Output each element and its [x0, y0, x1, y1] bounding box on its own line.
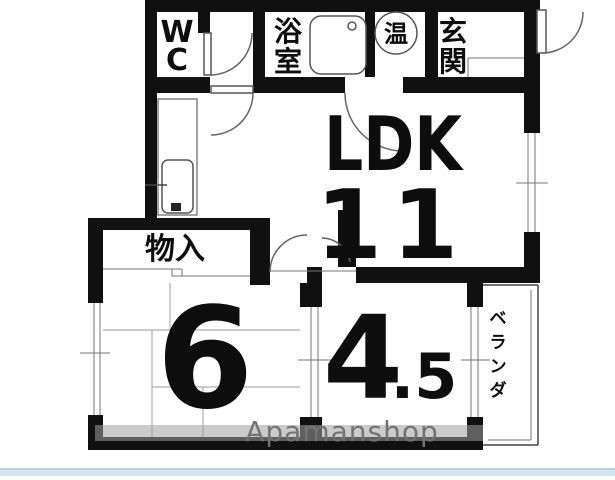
wall-under-entrance [403, 77, 524, 93]
wall-partition-top-stub [300, 283, 322, 307]
label-bath-2: 室 [274, 45, 302, 78]
front-door-leaf [537, 10, 546, 53]
window-room45-veranda [461, 307, 490, 417]
label-bath-1: 浴 [274, 15, 303, 48]
label-wc-c: C [166, 43, 188, 78]
window-ldk-right [516, 133, 548, 232]
door-leaf-hall-ldk [211, 86, 253, 93]
bathtub-drain-icon [348, 22, 356, 30]
label-entrance-2: 関 [439, 45, 467, 78]
label-veranda-2: ラ [490, 333, 507, 353]
label-room45-frac: .5 [391, 340, 458, 413]
wall-under-wc [145, 77, 210, 93]
wall-veranda-top-stub [467, 283, 483, 307]
wall-bath-left [253, 12, 265, 77]
label-entrance-1: 玄 [439, 15, 467, 48]
sink-drain-icon [171, 203, 181, 211]
door-arc-hall-ldk [211, 93, 253, 135]
floorplan-image: W C 浴 室 温 玄 関 LDK 11 物入 6 4 .5 ベ ラ ン ダ A… [0, 0, 615, 480]
wall-wc-right [198, 12, 210, 33]
wall-entrance-left [425, 12, 438, 93]
label-storage: 物入 [145, 232, 205, 267]
wall-under-bath [253, 77, 345, 93]
label-veranda-1: ベ [490, 309, 507, 329]
floorplan-svg: W C 浴 室 温 玄 関 LDK 11 物入 6 4 .5 ベ ラ ン ダ A… [0, 0, 615, 480]
label-ldk-size: 11 [316, 171, 468, 281]
wall-storage-right [250, 230, 270, 285]
wall-top [145, 0, 540, 12]
label-veranda-4: ダ [490, 380, 507, 401]
watermark-text: Apamanshop [245, 415, 439, 448]
door-arc-room6 [270, 235, 307, 272]
door-leaf-wc-hall [204, 33, 211, 75]
bathtub-icon [310, 16, 366, 74]
bottom-divider-bar [0, 469, 615, 476]
label-room6-size: 6 [156, 278, 253, 441]
wall-storage-top [88, 218, 270, 230]
front-door-arc [542, 12, 583, 53]
label-veranda-3: ン [490, 357, 507, 377]
label-water-heater: 温 [384, 20, 408, 48]
wall-left-mid [88, 230, 103, 303]
window-room6-left [80, 303, 110, 415]
door-arc-wc-hall [210, 33, 252, 75]
